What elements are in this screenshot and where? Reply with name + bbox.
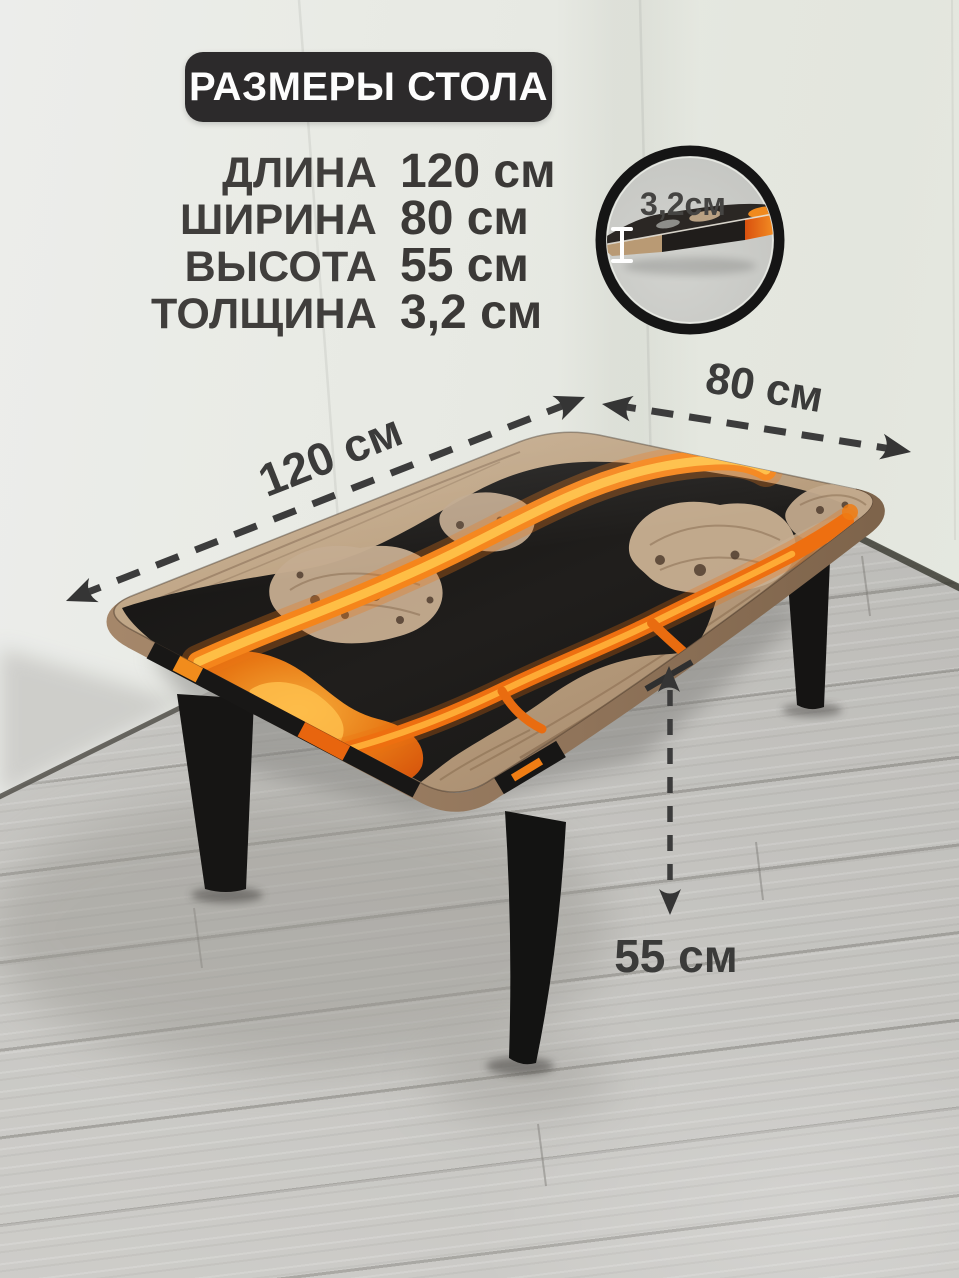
width-dimension-label: 80 см xyxy=(702,353,827,422)
height-arrowhead-down-icon xyxy=(659,889,681,915)
spec-value-thickness: 3,2 см xyxy=(400,285,542,340)
size-badge-title: РАЗМЕРЫ СТОЛА xyxy=(189,65,548,110)
specs-list: ДЛИНА 120 см ШИРИНА 80 см ВЫСОТА 55 см Т… xyxy=(0,144,600,332)
spec-label-height: ВЫСОТА xyxy=(0,243,377,292)
spec-row-height: ВЫСОТА 55 см xyxy=(0,238,600,285)
height-dimension-label: 55 см xyxy=(614,930,738,982)
length-arrowhead-start-icon xyxy=(61,578,98,613)
thickness-inset: 3,2см xyxy=(600,151,780,329)
length-arrowhead-end-icon xyxy=(552,385,589,420)
spec-label-thickness: ТОЛЩИНА xyxy=(0,290,377,339)
spec-row-thickness: ТОЛЩИНА 3,2 см xyxy=(0,285,600,332)
size-badge: РАЗМЕРЫ СТОЛА xyxy=(185,52,552,122)
product-dimensions-image: 120 см 80 см 55 см xyxy=(0,0,959,1278)
wall-shadow xyxy=(0,648,186,797)
spec-row-length: ДЛИНА 120 см xyxy=(0,144,600,191)
width-dimension-line xyxy=(614,405,898,450)
spec-label-width: ШИРИНА xyxy=(0,196,377,245)
spec-label-length: ДЛИНА xyxy=(0,149,377,198)
thickness-label: 3,2см xyxy=(640,186,726,222)
spec-row-width: ШИРИНА 80 см xyxy=(0,191,600,238)
wall-seam-right xyxy=(952,0,955,540)
